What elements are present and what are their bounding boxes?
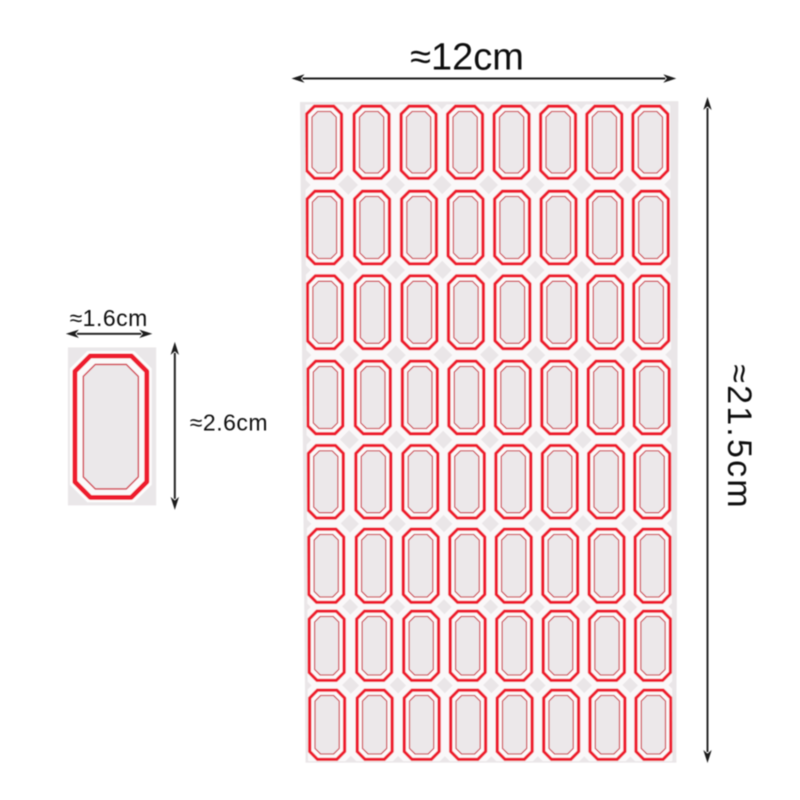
svg-text:≈2.6cm: ≈2.6cm	[190, 410, 268, 436]
svg-text:≈12cm: ≈12cm	[410, 36, 524, 78]
svg-text:≈21.5cm: ≈21.5cm	[720, 364, 758, 510]
svg-text:≈1.6cm: ≈1.6cm	[70, 305, 148, 331]
